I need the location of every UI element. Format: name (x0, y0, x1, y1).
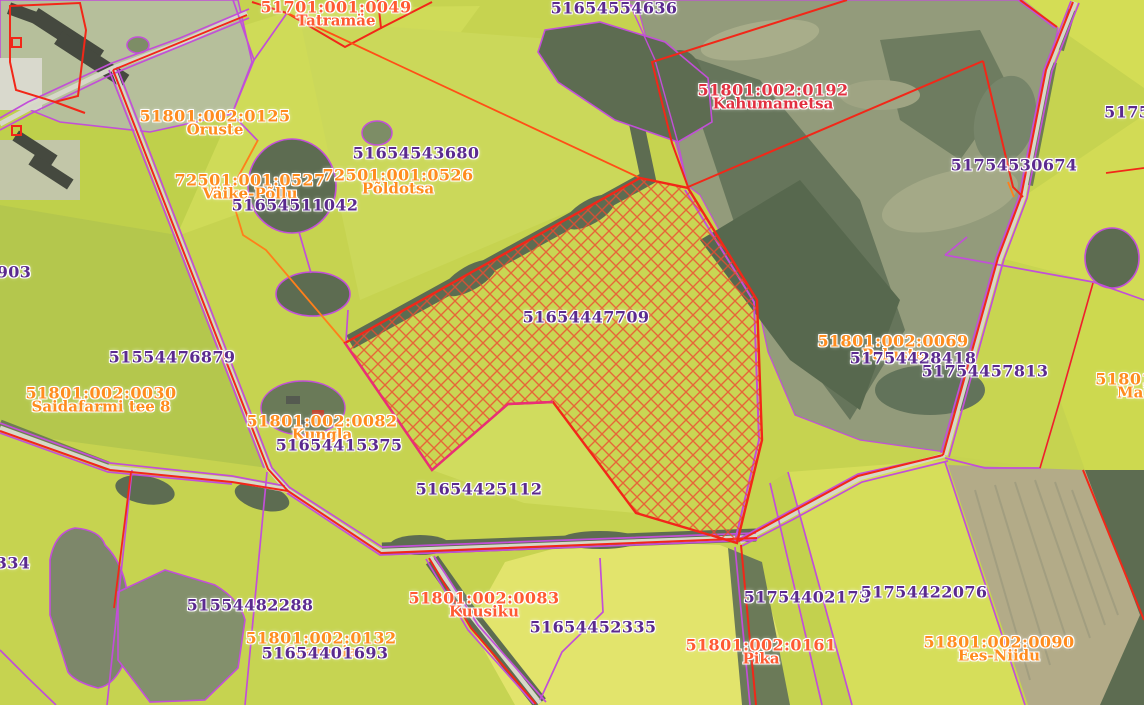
map-viewport[interactable]: 51701:001:0049Tatramäe5165455463651801:0… (0, 0, 1144, 705)
map-canvas (0, 0, 1144, 705)
